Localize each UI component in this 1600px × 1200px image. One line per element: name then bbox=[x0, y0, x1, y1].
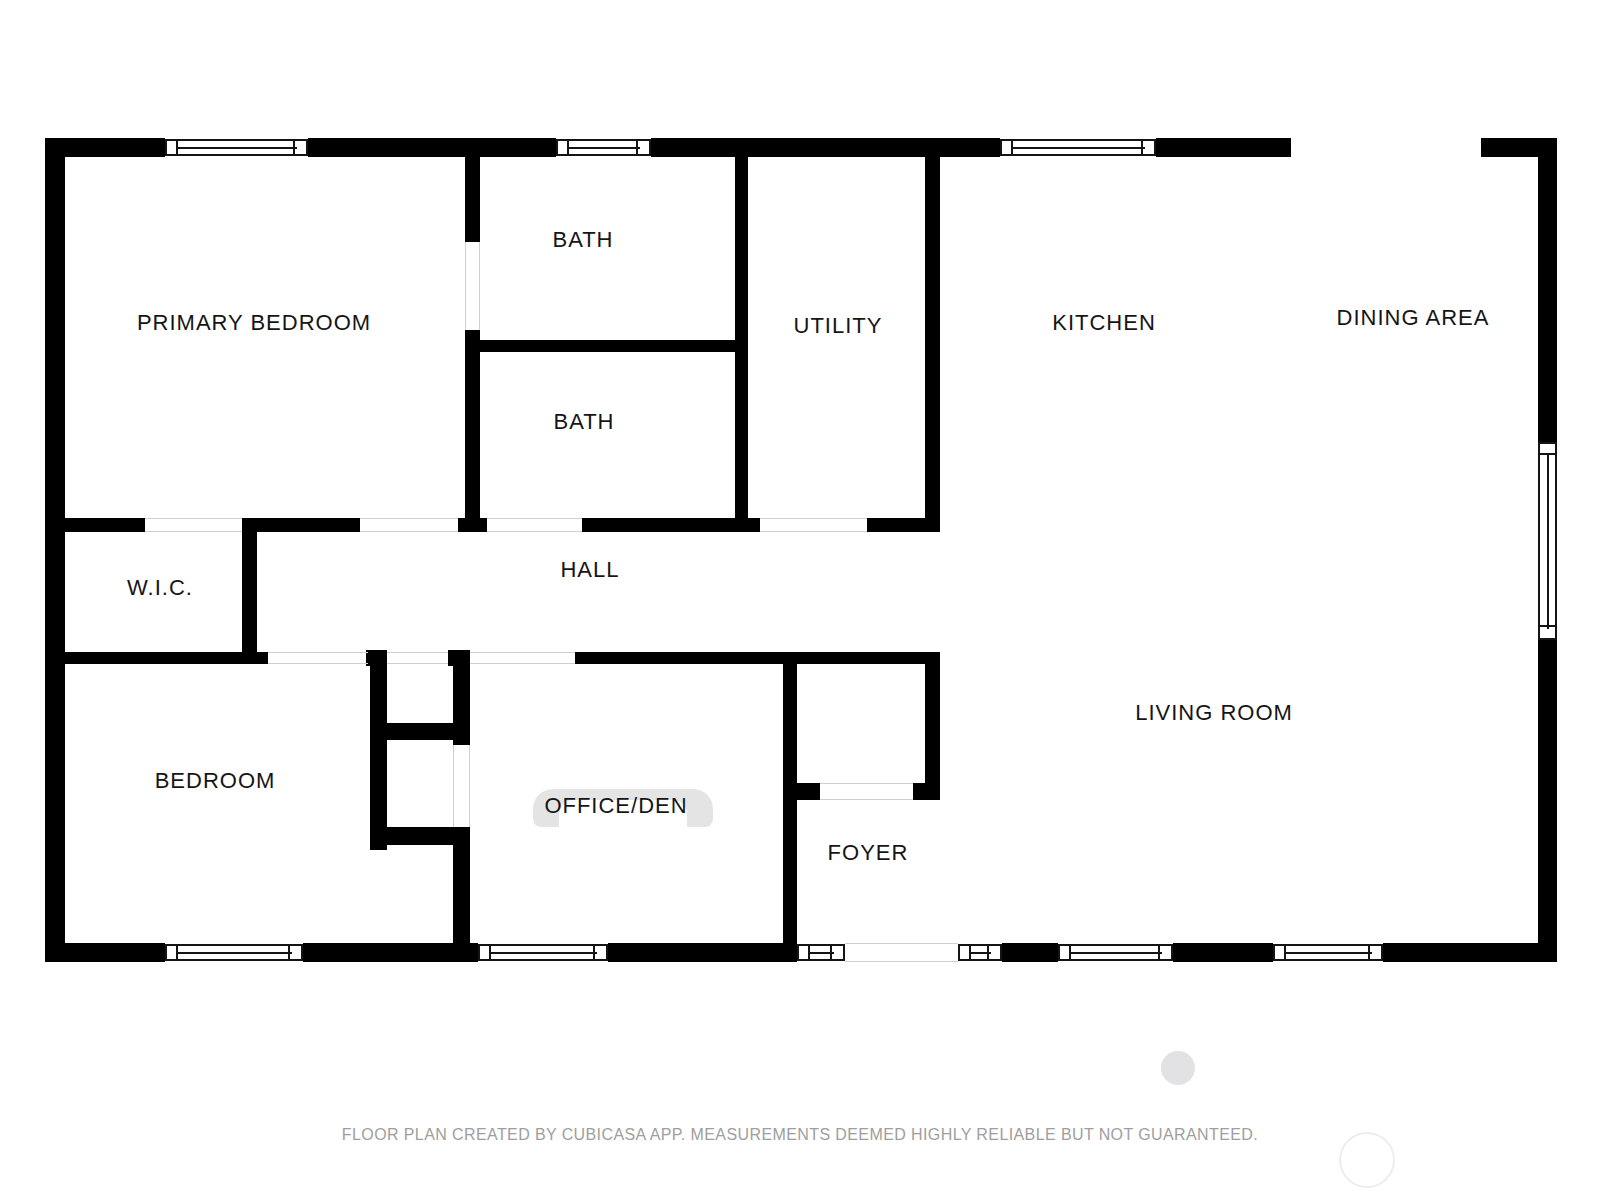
door-opening bbox=[820, 783, 913, 800]
wall bbox=[370, 650, 387, 850]
door-opening bbox=[268, 652, 368, 664]
wall bbox=[1156, 138, 1291, 157]
wall bbox=[458, 518, 487, 532]
window-icon bbox=[1058, 944, 1173, 961]
room-label-bedroom: BEDROOM bbox=[15, 767, 415, 795]
window-icon bbox=[478, 944, 608, 961]
room-label-bath-upper: BATH bbox=[383, 226, 783, 254]
wall bbox=[380, 723, 470, 740]
wall bbox=[1173, 943, 1273, 962]
wall bbox=[303, 943, 478, 962]
wall bbox=[575, 652, 940, 664]
wall bbox=[608, 943, 797, 962]
wall bbox=[45, 138, 165, 157]
floor-plan-page: PRIMARY BEDROOM BATH BATH UTILITY KITCHE… bbox=[0, 0, 1600, 1200]
wall bbox=[242, 518, 360, 532]
room-label-hall: HALL bbox=[390, 556, 790, 584]
wall bbox=[448, 650, 470, 666]
window-icon bbox=[797, 944, 845, 961]
wall bbox=[308, 138, 556, 157]
window-icon bbox=[958, 944, 1002, 961]
room-label-wic: W.I.C. bbox=[0, 574, 360, 602]
door-opening bbox=[465, 242, 480, 330]
window-icon bbox=[165, 139, 308, 156]
floor-plan: PRIMARY BEDROOM BATH BATH UTILITY KITCHE… bbox=[0, 0, 1600, 1200]
wall bbox=[45, 943, 165, 962]
wall bbox=[366, 650, 387, 666]
door-opening bbox=[145, 518, 242, 532]
room-label-primary-bedroom: PRIMARY BEDROOM bbox=[54, 309, 454, 337]
wall bbox=[45, 652, 268, 664]
watermark-dot bbox=[1161, 1051, 1195, 1085]
wall bbox=[380, 827, 466, 845]
window-icon bbox=[1538, 442, 1557, 640]
room-label-dining-area: DINING AREA bbox=[1213, 304, 1600, 332]
room-label-living-room: LIVING ROOM bbox=[1014, 699, 1414, 727]
room-label-foyer: FOYER bbox=[668, 839, 1068, 867]
wall bbox=[1383, 943, 1557, 962]
door-opening bbox=[360, 518, 458, 532]
wall bbox=[1002, 943, 1058, 962]
window-icon bbox=[1273, 944, 1383, 961]
wall bbox=[582, 518, 760, 532]
wall bbox=[1538, 640, 1557, 962]
window-icon bbox=[165, 944, 303, 961]
wall bbox=[867, 518, 940, 532]
wall bbox=[45, 518, 145, 532]
window-icon bbox=[1000, 139, 1156, 156]
door-opening bbox=[470, 652, 575, 664]
door-opening bbox=[487, 518, 582, 532]
window-icon bbox=[556, 139, 651, 156]
door-opening bbox=[760, 518, 867, 532]
footer-disclaimer: FLOOR PLAN CREATED BY CUBICASA APP. MEAS… bbox=[0, 1126, 1600, 1144]
room-label-bath-lower: BATH bbox=[384, 408, 784, 436]
door-opening bbox=[387, 652, 448, 664]
wall bbox=[925, 157, 940, 532]
wall bbox=[45, 138, 65, 962]
wall bbox=[651, 138, 1000, 157]
wall bbox=[925, 663, 940, 800]
front-door-opening bbox=[845, 943, 958, 962]
wall bbox=[913, 783, 940, 800]
wall bbox=[466, 340, 748, 352]
room-label-office-den: OFFICE/DEN bbox=[416, 792, 816, 820]
wall bbox=[1538, 138, 1557, 442]
